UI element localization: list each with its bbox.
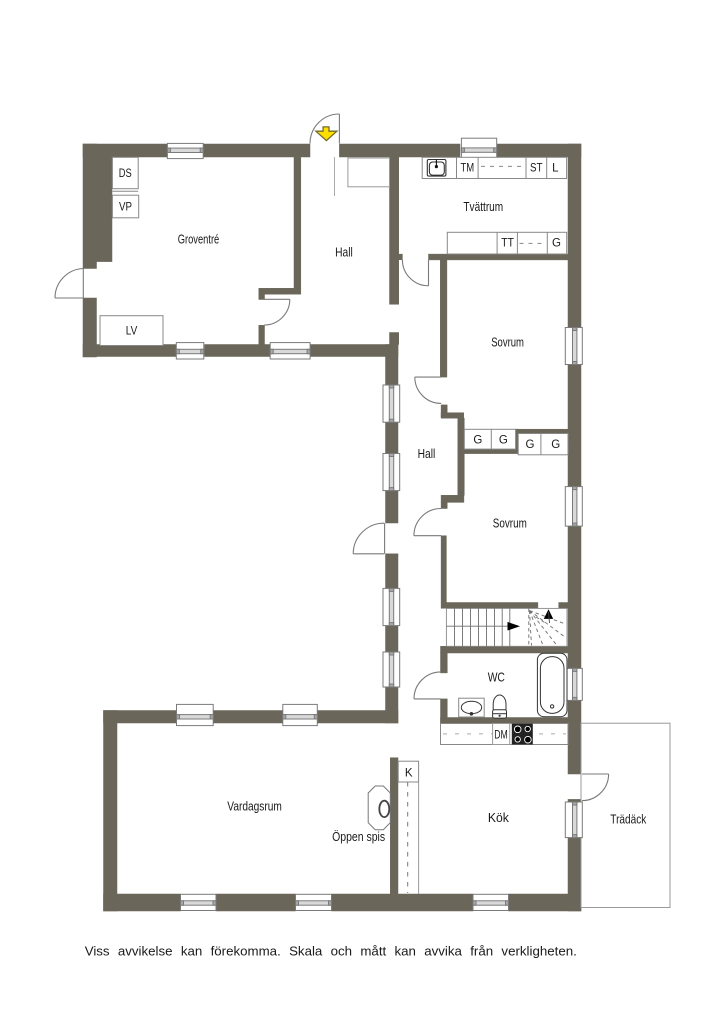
svg-text:G: G — [552, 238, 561, 250]
svg-text:Hall: Hall — [418, 447, 436, 461]
svg-text:Sovrum: Sovrum — [491, 335, 524, 349]
svg-text:G: G — [473, 434, 482, 446]
svg-text:Öppen spis: Öppen spis — [332, 830, 385, 844]
svg-text:Viss avvikelse kan förekomma.: Viss avvikelse kan förekomma. Skala och … — [85, 944, 577, 959]
svg-text:TT: TT — [501, 238, 514, 250]
svg-text:G: G — [551, 439, 560, 451]
svg-text:Hall: Hall — [335, 245, 353, 259]
svg-text:Tvättrum: Tvättrum — [463, 200, 503, 214]
svg-text:Vardagsrum: Vardagsrum — [227, 800, 282, 814]
svg-text:DS: DS — [119, 168, 132, 180]
svg-text:TM: TM — [460, 162, 474, 174]
svg-text:Groventré: Groventré — [178, 233, 220, 247]
svg-text:L: L — [552, 162, 559, 174]
svg-text:VP: VP — [119, 201, 132, 213]
svg-text:ST: ST — [530, 162, 543, 174]
svg-text:DM: DM — [494, 730, 508, 742]
svg-text:Sovrum: Sovrum — [493, 517, 527, 531]
svg-text:G: G — [499, 434, 508, 446]
svg-text:Kök: Kök — [488, 811, 510, 825]
svg-text:K: K — [405, 767, 413, 779]
svg-text:Trädäck: Trädäck — [610, 813, 647, 827]
svg-text:LV: LV — [126, 326, 138, 338]
svg-text:WC: WC — [488, 671, 505, 685]
svg-text:G: G — [526, 439, 535, 451]
